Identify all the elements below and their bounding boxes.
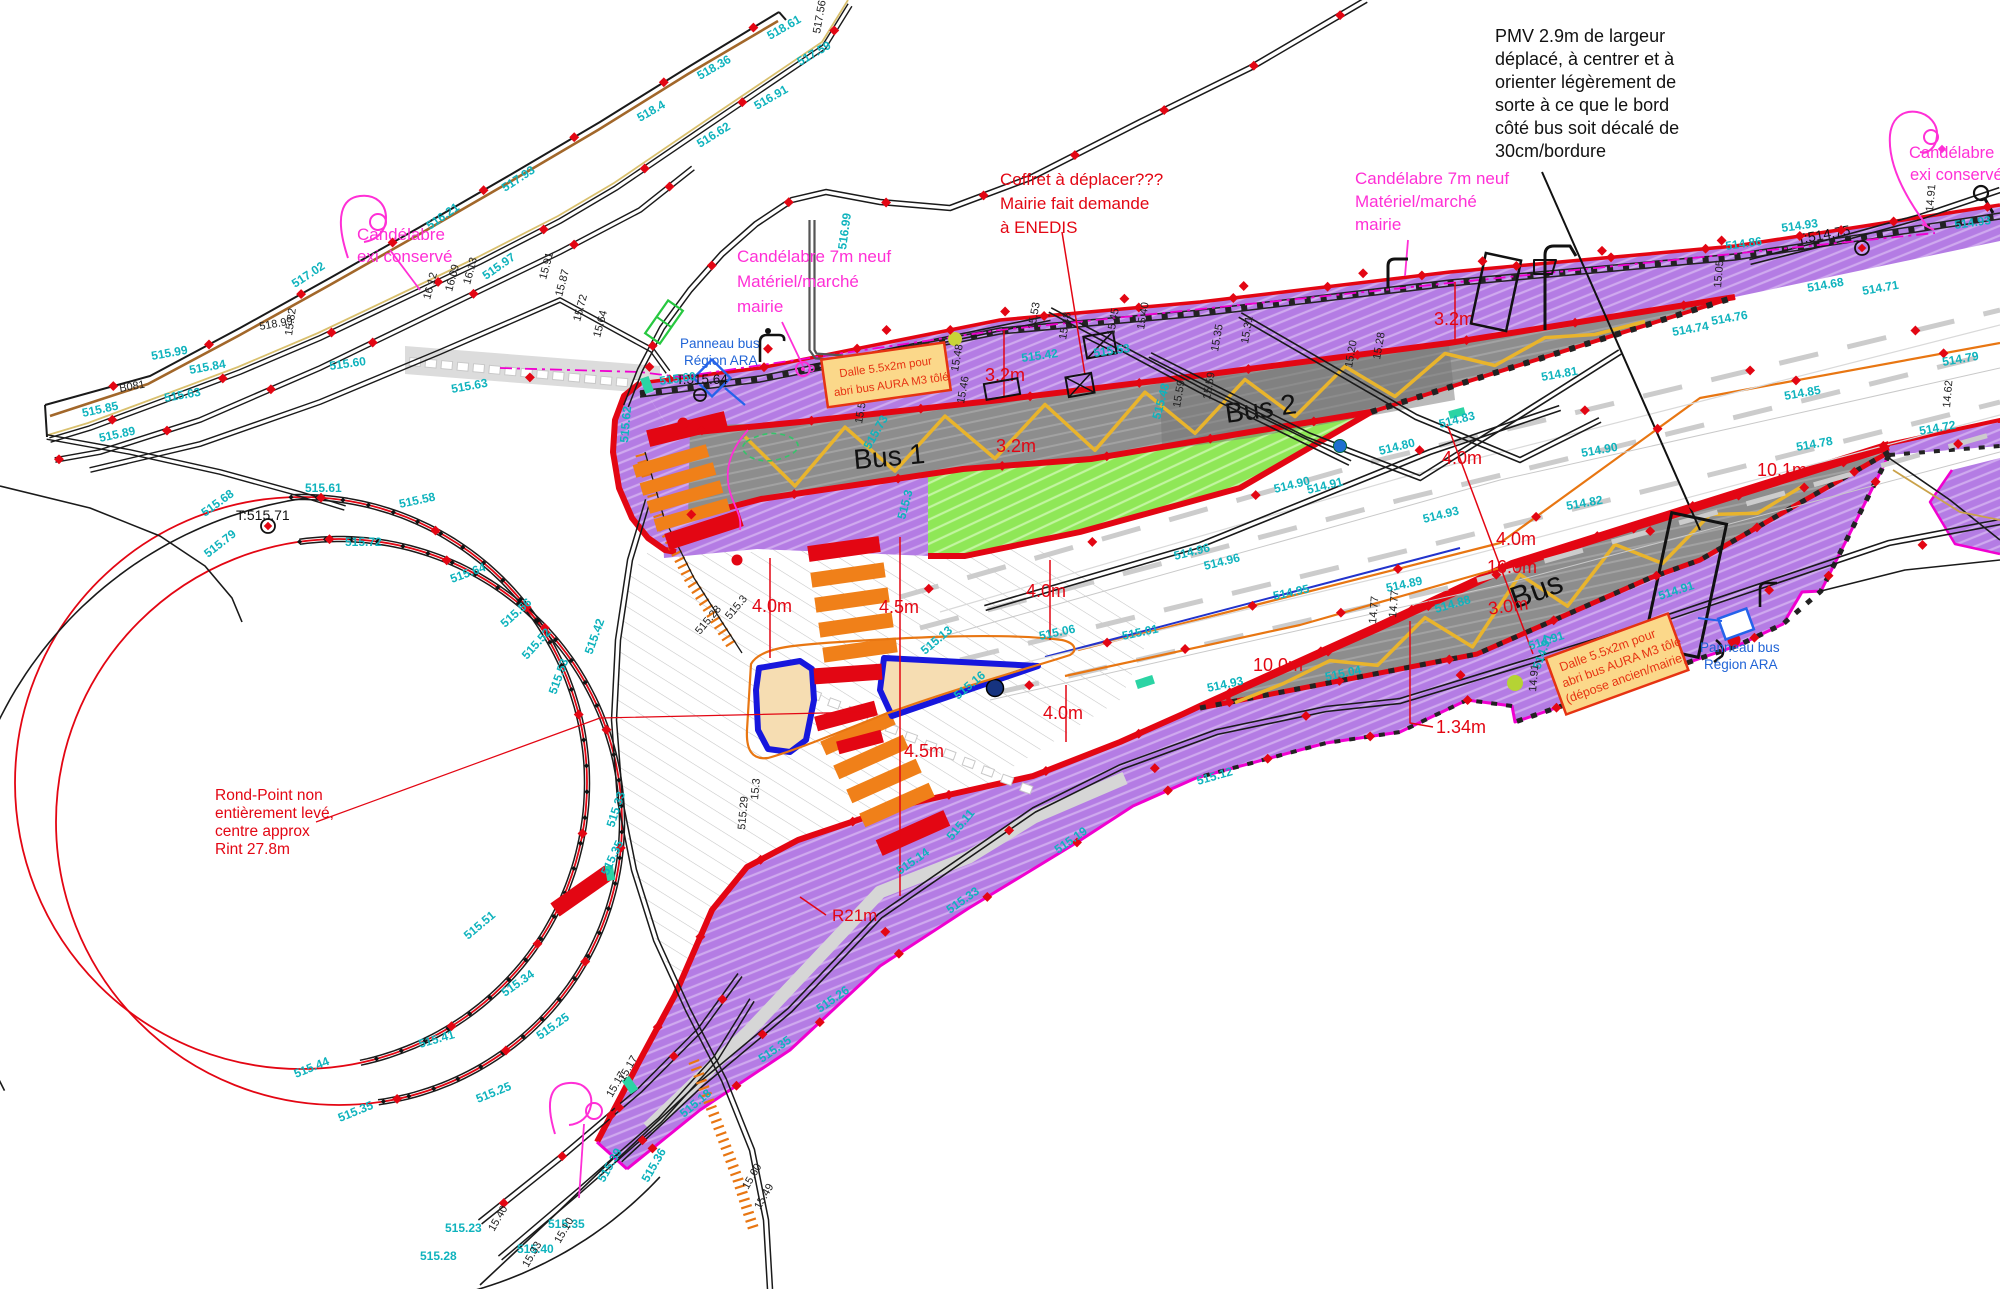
svg-text:PMV 2.9m de largeur: PMV 2.9m de largeur <box>1495 26 1665 46</box>
svg-text:4.5m: 4.5m <box>904 741 944 761</box>
svg-text:exi conservé: exi conservé <box>1910 166 2000 184</box>
svg-text:Panneau bus: Panneau bus <box>680 336 760 351</box>
svg-text:Rond-Point non: Rond-Point non <box>215 787 323 804</box>
svg-text:515.23: 515.23 <box>445 1221 482 1235</box>
svg-text:14.77: 14.77 <box>1387 590 1401 618</box>
svg-text:515.61: 515.61 <box>305 481 342 495</box>
svg-text:14.91: 14.91 <box>1924 184 1938 212</box>
svg-text:orienter légèrement de: orienter légèrement de <box>1495 72 1676 92</box>
svg-text:Candélabre 7m neuf: Candélabre 7m neuf <box>737 247 891 266</box>
svg-text:entièrement levé,: entièrement levé, <box>215 805 334 822</box>
svg-text:à ENEDIS: à ENEDIS <box>1000 218 1077 237</box>
svg-text:Matériel/marché: Matériel/marché <box>737 272 859 291</box>
svg-text:15.05: 15.05 <box>1712 260 1726 288</box>
svg-text:10.0m: 10.0m <box>1253 655 1303 675</box>
svg-text:Mairie fait demande: Mairie fait demande <box>1000 194 1149 213</box>
svg-text:mairie: mairie <box>1355 215 1401 234</box>
svg-text:4.0m: 4.0m <box>1043 703 1083 723</box>
svg-text:o: o <box>808 360 815 375</box>
svg-text:exi conservé: exi conservé <box>357 247 452 266</box>
svg-text:15.3: 15.3 <box>749 778 763 800</box>
svg-text:R21m: R21m <box>832 906 877 925</box>
svg-text:14.91: 14.91 <box>1527 664 1541 692</box>
svg-text:Coffret à déplacer???: Coffret à déplacer??? <box>1000 170 1163 189</box>
svg-text:côté bus soit décalé de: côté bus soit décalé de <box>1495 118 1679 138</box>
svg-text:4.0m: 4.0m <box>1026 581 1066 601</box>
svg-text:Candélabre 7m neuf: Candélabre 7m neuf <box>1355 169 1509 188</box>
svg-text:Panneau bus: Panneau bus <box>1700 640 1780 655</box>
svg-text:centre approx: centre approx <box>215 823 310 840</box>
svg-text:1.34m: 1.34m <box>1436 717 1486 737</box>
svg-text:Rint 27.8m: Rint 27.8m <box>215 841 290 858</box>
svg-text:Candélabre: Candélabre <box>1909 144 1994 162</box>
svg-text:sorte à ce que le bord: sorte à ce que le bord <box>1495 95 1669 115</box>
svg-text:4.0m: 4.0m <box>1496 529 1536 549</box>
svg-text:Matériel/marché: Matériel/marché <box>1355 192 1477 211</box>
svg-text:14.77: 14.77 <box>1367 596 1381 624</box>
svg-text:3.2m: 3.2m <box>996 436 1036 456</box>
svg-text:mairie: mairie <box>737 297 783 316</box>
svg-text:14.62: 14.62 <box>1941 380 1955 408</box>
svg-text:Région ARA: Région ARA <box>1704 657 1778 672</box>
svg-text:4.5m: 4.5m <box>879 597 919 617</box>
svg-text:515.72: 515.72 <box>345 535 382 549</box>
svg-text:30cm/bordure: 30cm/bordure <box>1495 141 1606 161</box>
svg-text:515.28: 515.28 <box>420 1249 457 1263</box>
svg-text:déplacé, à centrer et à: déplacé, à centrer et à <box>1495 49 1675 69</box>
svg-text:T:515.71: T:515.71 <box>236 507 290 523</box>
svg-text:Région ARA: Région ARA <box>684 353 758 368</box>
svg-text:3.2m: 3.2m <box>1434 309 1474 329</box>
svg-text:4.0m: 4.0m <box>752 596 792 616</box>
svg-text:10.1m: 10.1m <box>1757 460 1807 480</box>
